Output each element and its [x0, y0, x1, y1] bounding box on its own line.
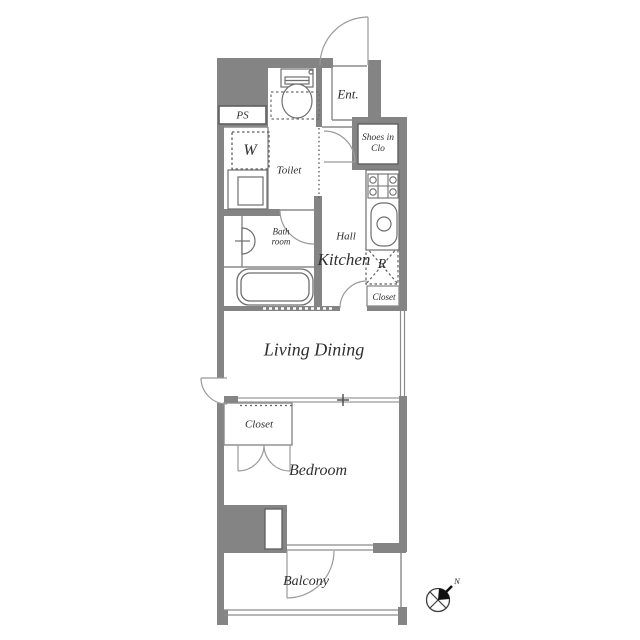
label-balcony: Balcony — [283, 574, 329, 590]
bathtub — [237, 269, 313, 305]
label-compass-north: N — [454, 577, 460, 587]
label-shoes-closet: Shoes in Clo — [357, 133, 399, 155]
north-arrow-icon — [427, 586, 453, 612]
toilet-fixture — [271, 69, 319, 119]
window-living — [401, 311, 405, 396]
hall-living-door-swing — [340, 281, 367, 308]
bedroom-closet-door-swings — [238, 445, 290, 471]
floor-plan: PS W Toilet Ent. Shoes in Clo Bath room … — [0, 0, 640, 640]
label-refrigerator: R — [378, 257, 387, 273]
bedroom-shaft-panel — [265, 509, 282, 549]
label-ps: PS — [236, 109, 248, 122]
plus-marker — [337, 394, 349, 406]
label-bedroom: Bedroom — [289, 462, 347, 480]
washbasin — [235, 228, 255, 254]
label-hall: Hall — [336, 231, 356, 244]
label-bedroom-closet: Closet — [245, 419, 273, 432]
window-balcony — [287, 545, 373, 550]
floor-plan-canvas — [0, 0, 640, 640]
kitchen-sink — [371, 203, 397, 246]
label-toilet: Toilet — [277, 165, 302, 178]
label-washer: W — [243, 142, 256, 160]
hall-door-swing — [324, 131, 355, 162]
label-kitchen-closet: Closet — [372, 291, 395, 301]
vanity-unit — [228, 170, 267, 209]
partition-living-bedroom — [238, 398, 399, 402]
left-service-door-swing — [201, 378, 227, 404]
label-entrance: Ent. — [337, 88, 358, 103]
entrance-door-swing — [320, 17, 368, 65]
label-living-dining: Living Dining — [264, 340, 365, 361]
balcony-railing — [224, 610, 398, 615]
label-kitchen: Kitchen — [318, 250, 371, 270]
label-bathroom: Bath room — [265, 227, 297, 248]
